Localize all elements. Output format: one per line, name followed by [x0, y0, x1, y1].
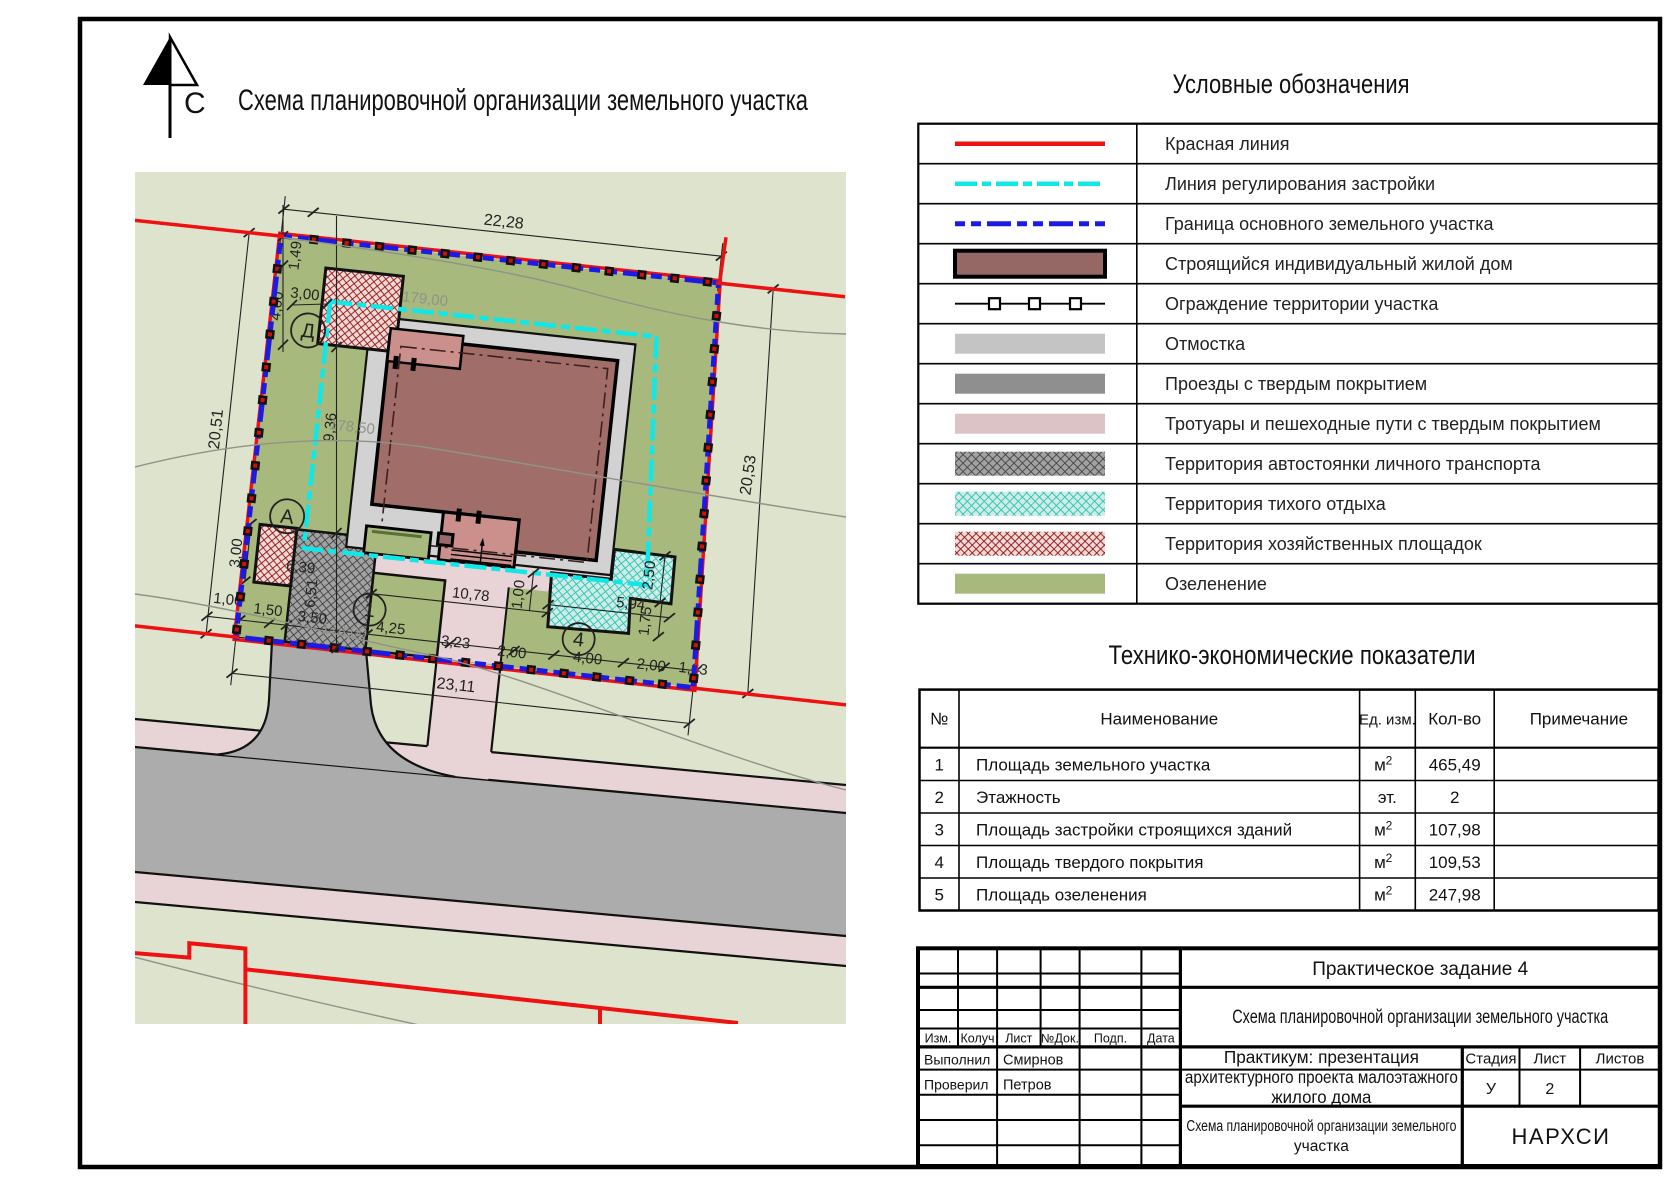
svg-text:Проезды с твердым покрытием: Проезды с твердым покрытием — [1165, 374, 1427, 394]
svg-text:Изм.: Изм. — [925, 1032, 952, 1046]
svg-text:Озеленение: Озеленение — [1165, 574, 1267, 594]
svg-text:6,39: 6,39 — [285, 557, 316, 577]
svg-text:1: 1 — [363, 599, 376, 622]
svg-text:2: 2 — [1386, 753, 1393, 767]
svg-text:Ед. изм.: Ед. изм. — [1359, 712, 1416, 729]
svg-text:Технико-экономические показате: Технико-экономические показатели — [1109, 640, 1476, 670]
svg-text:Схема планировочной организаци: Схема планировочной организации земельно… — [238, 84, 808, 117]
svg-text:Площадь твердого покрытия: Площадь твердого покрытия — [976, 853, 1204, 872]
svg-text:6,51: 6,51 — [302, 578, 322, 609]
svg-text:5: 5 — [934, 885, 943, 904]
svg-text:Практическое задание 4: Практическое задание 4 — [1312, 959, 1528, 980]
svg-text:Красная линия: Красная линия — [1165, 134, 1290, 154]
svg-text:1,00: 1,00 — [509, 579, 529, 610]
svg-text:Выполнил: Выполнил — [924, 1052, 990, 1068]
svg-text:м: м — [1374, 755, 1386, 774]
svg-text:Смирнов: Смирнов — [1003, 1053, 1064, 1069]
svg-text:2: 2 — [1450, 788, 1459, 807]
svg-text:Лист: Лист — [1534, 1051, 1567, 1068]
svg-text:Линия регулирования застройки: Линия регулирования застройки — [1165, 174, 1435, 194]
svg-text:4: 4 — [934, 853, 943, 872]
svg-text:Практикум: презентация: Практикум: презентация — [1224, 1047, 1419, 1067]
svg-text:2: 2 — [1386, 883, 1393, 897]
svg-text:Лист: Лист — [1005, 1032, 1032, 1046]
svg-text:3: 3 — [934, 820, 943, 839]
svg-text:Схема планировочной организаци: Схема планировочной организации земельно… — [1232, 1007, 1608, 1028]
svg-text:Кол-во: Кол-во — [1428, 710, 1481, 729]
svg-text:Ограждение территории участка: Ограждение территории участка — [1165, 294, 1439, 314]
svg-text:Отмостка: Отмостка — [1165, 334, 1246, 354]
svg-text:Строящийся индивидуальный жило: Строящийся индивидуальный жилой дом — [1165, 254, 1513, 274]
svg-text:Площадь озеленения: Площадь озеленения — [976, 885, 1147, 904]
svg-text:2: 2 — [1386, 818, 1393, 832]
svg-text:м: м — [1374, 885, 1386, 904]
svg-text:Дата: Дата — [1147, 1032, 1175, 1046]
svg-text:Подп.: Подп. — [1094, 1032, 1127, 1046]
svg-text:Граница основного земельного у: Граница основного земельного участка — [1165, 214, 1494, 234]
svg-text:2,00: 2,00 — [496, 643, 527, 663]
svg-text:Примечание: Примечание — [1530, 710, 1628, 729]
svg-text:2: 2 — [934, 788, 943, 807]
svg-text:247,98: 247,98 — [1429, 885, 1481, 904]
svg-text:4: 4 — [572, 629, 585, 652]
svg-text:107,98: 107,98 — [1429, 820, 1481, 839]
svg-text:Колуч: Колуч — [960, 1032, 994, 1046]
svg-text:3,00: 3,00 — [289, 284, 320, 304]
svg-text:Площадь земельного участка: Площадь земельного участка — [976, 755, 1211, 774]
svg-text:2,00: 2,00 — [636, 655, 667, 675]
svg-text:1,75: 1,75 — [635, 606, 655, 637]
svg-text:Территория хозяйственных площа: Территория хозяйственных площадок — [1165, 534, 1482, 554]
svg-text:м: м — [1374, 820, 1386, 839]
svg-text:Петров: Петров — [1003, 1078, 1052, 1094]
svg-text:1,49: 1,49 — [285, 240, 305, 271]
svg-text:НАРХСИ: НАРХСИ — [1512, 1124, 1611, 1149]
svg-text:№: № — [930, 710, 948, 729]
svg-text:Этажность: Этажность — [976, 788, 1061, 807]
svg-text:2: 2 — [1386, 851, 1393, 865]
svg-text:Схема планировочной организаци: Схема планировочной организации земельно… — [1186, 1118, 1456, 1135]
svg-text:Д: Д — [300, 320, 316, 343]
svg-text:У: У — [1486, 1081, 1497, 1098]
svg-text:жилого дома: жилого дома — [1271, 1087, 1371, 1107]
svg-text:109,53: 109,53 — [1429, 853, 1481, 872]
svg-text:Стадия: Стадия — [1465, 1051, 1516, 1068]
svg-text:C: C — [184, 87, 206, 120]
svg-text:2: 2 — [1545, 1081, 1554, 1098]
svg-text:Наименование: Наименование — [1100, 710, 1218, 729]
svg-text:465,49: 465,49 — [1429, 755, 1481, 774]
svg-text:эт.: эт. — [1378, 788, 1397, 807]
svg-text:м: м — [1374, 853, 1386, 872]
svg-text:№Док.: №Док. — [1041, 1032, 1079, 1046]
svg-text:Территория тихого отдыха: Территория тихого отдыха — [1165, 494, 1387, 514]
svg-text:3,23: 3,23 — [440, 632, 471, 652]
svg-text:участка: участка — [1294, 1138, 1349, 1155]
svg-text:1,50: 1,50 — [253, 600, 284, 620]
svg-text:2,50: 2,50 — [639, 560, 659, 591]
svg-text:Проверил: Проверил — [924, 1077, 988, 1093]
svg-text:Территория автостоянки личного: Территория автостоянки личного транспорт… — [1165, 454, 1542, 474]
svg-text:Условные обозначения: Условные обозначения — [1173, 69, 1410, 99]
svg-text:Площадь застройки строящихся з: Площадь застройки строящихся зданий — [976, 820, 1292, 839]
svg-text:Листов: Листов — [1596, 1051, 1645, 1068]
svg-text:Тротуары и пешеходные пути с т: Тротуары и пешеходные пути с твердым пок… — [1165, 414, 1601, 434]
svg-text:1: 1 — [934, 755, 943, 774]
svg-text:архитектурного проекта малоэта: архитектурного проекта малоэтажного — [1185, 1067, 1458, 1087]
